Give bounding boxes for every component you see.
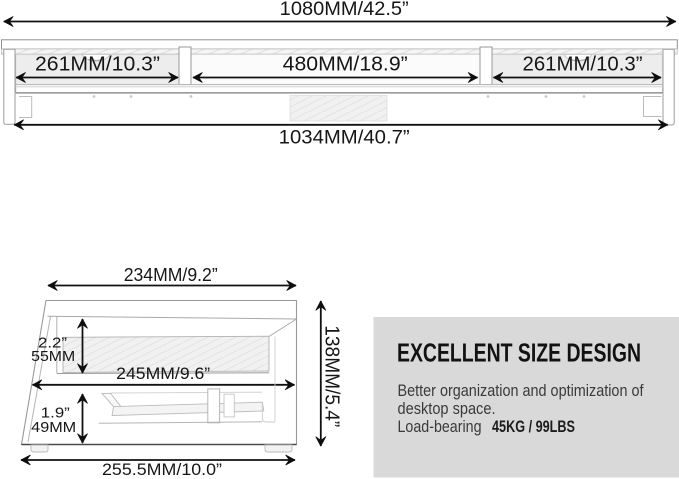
- svg-text:245MM/9.6”: 245MM/9.6”: [116, 365, 210, 383]
- svg-text:480MM/18.9”: 480MM/18.9”: [283, 52, 408, 75]
- svg-text:desktop space.: desktop space.: [398, 400, 496, 418]
- svg-text:55MM: 55MM: [31, 348, 75, 365]
- svg-text:234MM/9.2”: 234MM/9.2”: [124, 265, 218, 285]
- svg-text:1034MM/40.7”: 1034MM/40.7”: [279, 126, 410, 148]
- svg-text:1080MM/42.5”: 1080MM/42.5”: [280, 0, 409, 20]
- svg-text:45KG / 99LBS: 45KG / 99LBS: [492, 418, 575, 436]
- svg-text:261MM/10.3”: 261MM/10.3”: [35, 52, 160, 75]
- svg-text:255.5MM/10.0”: 255.5MM/10.0”: [102, 461, 222, 479]
- svg-text:EXCELLENT SIZE DESIGN: EXCELLENT SIZE DESIGN: [397, 338, 641, 368]
- svg-text:261MM/10.3”: 261MM/10.3”: [523, 52, 643, 75]
- svg-text:138MM/5.4”: 138MM/5.4”: [321, 325, 343, 427]
- svg-text:49MM: 49MM: [31, 419, 76, 436]
- svg-text:Load-bearing: Load-bearing: [398, 418, 482, 436]
- svg-text:Better organization and optimi: Better organization and optimization of: [398, 382, 644, 400]
